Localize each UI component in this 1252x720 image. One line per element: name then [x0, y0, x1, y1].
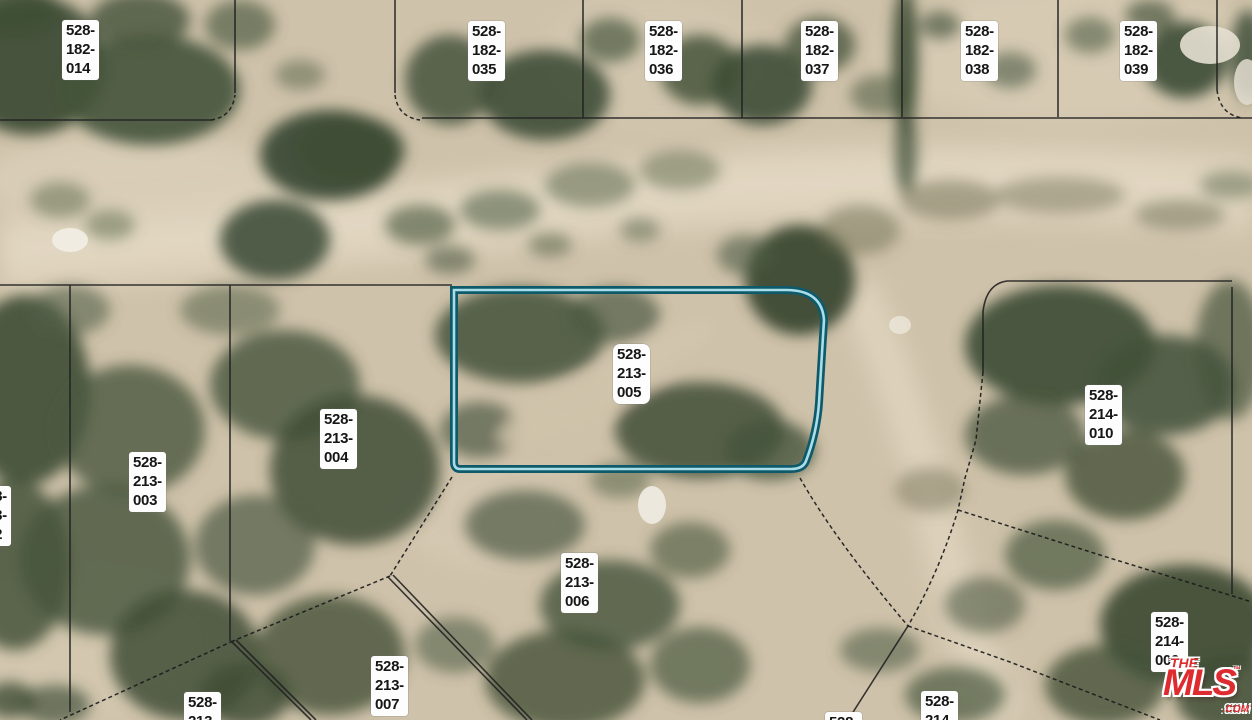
parcel-label-line: 528- — [472, 22, 501, 41]
parcel-label-line: 004 — [324, 448, 353, 467]
parcel-label-528-213-003: 528-213-003 — [129, 452, 166, 512]
parcel-label-528-182-036: 528-182-036 — [645, 21, 682, 81]
parcel-label-line: 182- — [649, 41, 678, 60]
parcel-label-528-182-038: 528-182-038 — [961, 21, 998, 81]
parcel-label-line: 528- — [133, 453, 162, 472]
parcel-label-528-213-006: 528-213-006 — [561, 553, 598, 613]
parcel-label-line: 213- — [0, 506, 7, 525]
parcel-label-528-214: 528-214- — [921, 691, 958, 720]
mls-logo-mls: MLS — [1163, 663, 1235, 703]
parcel-label-line: 182- — [805, 41, 834, 60]
parcel-label-line: 038 — [965, 60, 994, 79]
parcel-label-line: 528- — [925, 692, 954, 711]
parcel-label-line: 007 — [375, 695, 404, 714]
parcel-label-528-213-007: 528-213-007 — [371, 656, 408, 716]
parcel-label-line: 039 — [1124, 60, 1153, 79]
parcel-label-line: 037 — [805, 60, 834, 79]
parcel-label-line: 213- — [375, 676, 404, 695]
parcel-label-528-182-014: 528-182-014 — [62, 20, 99, 80]
parcel-label-line: 213- — [188, 712, 217, 720]
parcel-label-line: 528- — [188, 693, 217, 712]
parcel-label-line: 214- — [925, 711, 954, 720]
parcel-label-line: 002 — [0, 525, 7, 544]
parcel-label-line: 036 — [649, 60, 678, 79]
parcel-label-line: 214- — [1155, 632, 1184, 651]
parcel-label-line: 010 — [1089, 424, 1118, 443]
parcel-label-line: 213- — [617, 364, 646, 383]
mls-logo-com: .COM — [1223, 704, 1249, 715]
parcel-label-line: 528- — [805, 22, 834, 41]
mls-logo: THE MLS ™ .COM — [1163, 655, 1247, 717]
parcel-label-line: 528- — [375, 657, 404, 676]
parcel-label-line: 214- — [1089, 405, 1118, 424]
aerial-parcel-map: 528-182-014528-182-035528-182-036528-182… — [0, 0, 1252, 720]
parcel-label-528-213-002: 528-213-002 — [0, 486, 11, 546]
parcel-label-528-182-039: 528-182-039 — [1120, 21, 1157, 81]
parcel-label-line: 528- — [1124, 22, 1153, 41]
parcel-labels-layer: 528-182-014528-182-035528-182-036528-182… — [0, 0, 1252, 720]
parcel-label-line: 528- — [1155, 613, 1184, 632]
parcel-label-line: 528- — [829, 713, 858, 720]
parcel-label-line: 182- — [965, 41, 994, 60]
parcel-label-line: 213- — [565, 573, 594, 592]
trademark-symbol: ™ — [1233, 665, 1241, 674]
parcel-label-528-213-005: 528-213-005 — [613, 344, 650, 404]
parcel-label-528-182-037: 528-182-037 — [801, 21, 838, 81]
parcel-label-line: 528- — [0, 487, 7, 506]
parcel-label-line: 014 — [66, 59, 95, 78]
parcel-label-line: 003 — [133, 491, 162, 510]
parcel-label-line: 213- — [324, 429, 353, 448]
parcel-label-528-213: 528-213- — [184, 692, 221, 720]
parcel-label-line: 528- — [965, 22, 994, 41]
parcel-label-528-213-004: 528-213-004 — [320, 409, 357, 469]
parcel-label-line: 528- — [66, 21, 95, 40]
parcel-label-528-182-035: 528-182-035 — [468, 21, 505, 81]
parcel-label-line: 182- — [1124, 41, 1153, 60]
parcel-label-line: 528- — [649, 22, 678, 41]
parcel-label-line: 182- — [472, 41, 501, 60]
parcel-label-line: 528- — [1089, 386, 1118, 405]
parcel-label-line: 213- — [133, 472, 162, 491]
parcel-label-528-214-010: 528-214-010 — [1085, 385, 1122, 445]
parcel-label-line: 035 — [472, 60, 501, 79]
parcel-label-line: 528- — [565, 554, 594, 573]
parcel-label-line: 528- — [324, 410, 353, 429]
parcel-label-line: 005 — [617, 383, 646, 402]
parcel-label-528: 528- — [825, 712, 862, 720]
parcel-label-line: 528- — [617, 345, 646, 364]
parcel-label-line: 182- — [66, 40, 95, 59]
parcel-label-line: 006 — [565, 592, 594, 611]
